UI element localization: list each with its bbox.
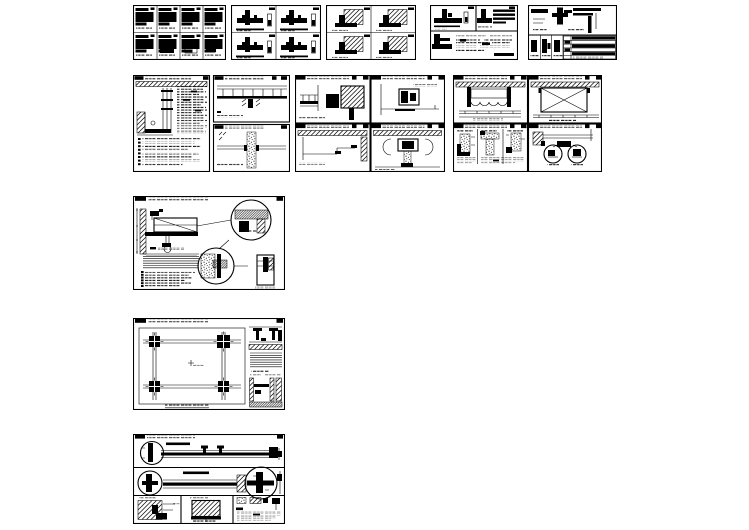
sheet-drawing <box>133 434 285 524</box>
cad-sheet-r1c2 <box>231 5 321 60</box>
panel-track-arcs <box>371 124 445 172</box>
cad-sheet-r5c1 <box>133 434 285 524</box>
hatch-panel-detail <box>190 498 221 523</box>
right-top-ceiling-detail <box>214 76 290 123</box>
panel-cove-step <box>296 124 371 172</box>
sheet-drawing <box>133 196 285 290</box>
cad-sheet-r1c4 <box>430 5 518 60</box>
cad-sheet-r2c1 <box>133 75 290 172</box>
sheet-drawing <box>326 5 416 60</box>
sheet-drawing <box>133 318 285 410</box>
cad-sheet-r3c1 <box>133 196 285 290</box>
sheet-drawing <box>295 75 445 172</box>
cad-sheet-r1c5 <box>528 5 617 60</box>
sheet-drawing <box>133 5 226 60</box>
sheet-drawing <box>453 75 602 172</box>
panel-stone-details <box>454 124 528 172</box>
sheet-drawing <box>133 75 290 172</box>
sheet-drawing <box>528 5 617 60</box>
cad-sheet-r1c1 <box>133 5 226 60</box>
panel-circle-callouts <box>529 124 602 172</box>
cad-sheet-r2c2 <box>295 75 445 172</box>
panel-wall-junction <box>371 76 445 124</box>
cad-sheet-r2c3 <box>453 75 602 172</box>
panel-access-hatch <box>529 76 602 124</box>
cad-sheet-r1c3 <box>326 5 416 60</box>
panel-curtain-box <box>296 76 371 124</box>
panel-valance <box>454 76 528 124</box>
cad-sheet-r4c1 <box>133 318 285 410</box>
left-panel-ceiling-section <box>134 76 210 172</box>
schedule-table <box>564 36 616 59</box>
drawing-collage-canvas <box>0 0 749 530</box>
sheet-drawing <box>231 5 321 60</box>
sheet-drawing <box>430 5 518 60</box>
right-bottom-pipe-detail <box>214 125 290 172</box>
